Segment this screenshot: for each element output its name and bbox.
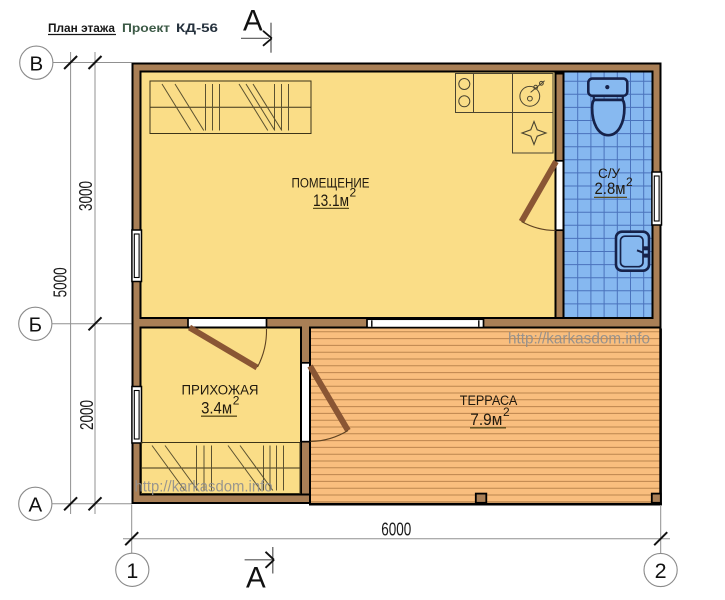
svg-text:2.8м: 2.8м (595, 179, 626, 198)
svg-text:ПОМЕЩЕНИЕ: ПОМЕЩЕНИЕ (292, 176, 370, 192)
svg-text:5000: 5000 (51, 267, 71, 297)
svg-text:1: 1 (126, 559, 138, 583)
svg-text:3.4м: 3.4м (201, 398, 232, 417)
svg-text:2: 2 (626, 175, 633, 189)
svg-text:2: 2 (233, 394, 240, 408)
svg-text:А: А (28, 494, 42, 517)
svg-text:http://karkasdom.info: http://karkasdom.info (508, 331, 650, 348)
svg-text:7.9м: 7.9м (470, 410, 502, 429)
svg-text:http://karkasdom.info: http://karkasdom.info (135, 479, 273, 496)
svg-text:2000: 2000 (77, 400, 97, 430)
svg-text:13.1м: 13.1м (313, 191, 349, 210)
svg-text:2: 2 (350, 186, 357, 200)
svg-text:КД-56: КД-56 (176, 21, 218, 35)
svg-text:Б: Б (29, 314, 42, 337)
svg-text:6000: 6000 (381, 520, 411, 540)
svg-text:3000: 3000 (76, 181, 96, 211)
svg-text:А: А (243, 5, 263, 38)
svg-text:План этажа: План этажа (48, 21, 115, 35)
svg-text:2: 2 (655, 559, 667, 583)
svg-text:Проект: Проект (122, 21, 170, 35)
svg-text:В: В (29, 52, 43, 75)
svg-text:А: А (246, 562, 266, 595)
svg-text:ПРИХОЖАЯ: ПРИХОЖАЯ (182, 383, 259, 399)
svg-text:2: 2 (503, 405, 510, 419)
